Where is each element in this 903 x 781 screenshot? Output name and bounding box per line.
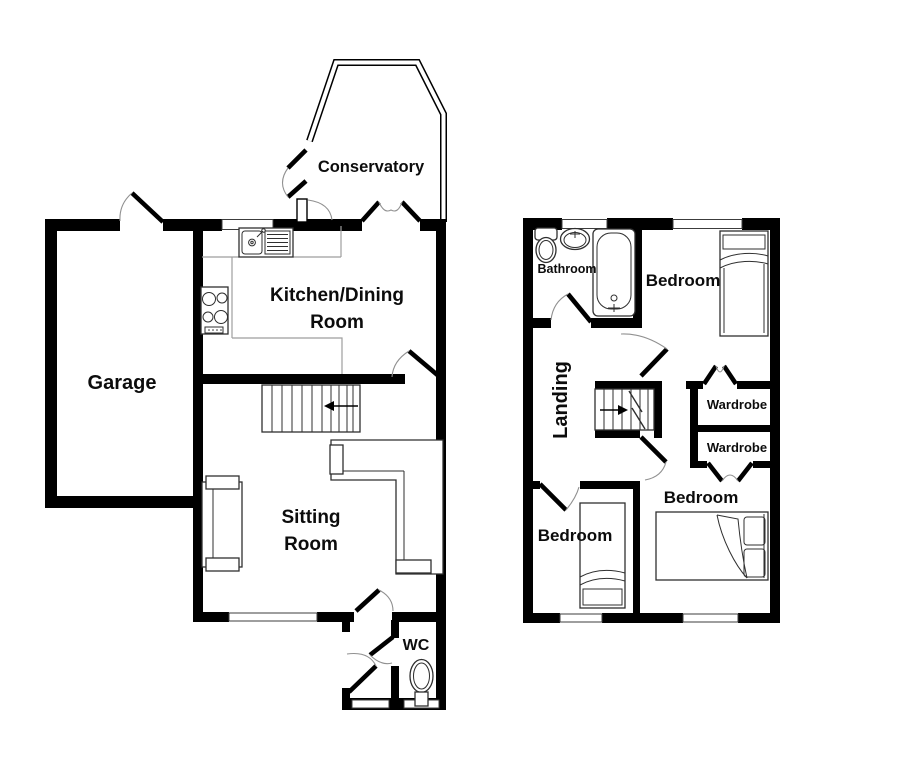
bathtub-icon: [593, 229, 635, 316]
kitchen-label-line1: Kitchen/Dining: [270, 285, 404, 306]
basin-icon: [561, 229, 590, 250]
bathroom-door-leaf: [568, 294, 591, 322]
garage-door-leaf: [132, 193, 163, 222]
wardrobe-upper-label: Wardrobe: [707, 397, 767, 412]
kitchen-sink-icon: [239, 228, 293, 257]
wardrobe-lower-label: Wardrobe: [707, 440, 767, 455]
hall-window: [352, 700, 389, 708]
bathroom-label: Bathroom: [537, 262, 596, 276]
bedroom-top-door-leaf: [641, 349, 667, 376]
bedroom-top-label: Bedroom: [646, 271, 721, 290]
bathroom-toilet-icon: [535, 228, 557, 263]
hob-icon: [201, 287, 228, 334]
garage-label: Garage: [88, 372, 157, 394]
sitting-label-line1: Sitting: [281, 507, 340, 528]
sitting-hall-door-leaf: [356, 590, 379, 611]
sitting-room-window: [229, 613, 317, 621]
wc-door-leaf: [370, 637, 393, 655]
conservatory-side-door-leaf: [288, 150, 306, 168]
sofa-icon: [202, 476, 242, 571]
single-bed-top-icon: [720, 231, 768, 336]
corner-sofa-icon: [330, 440, 443, 574]
single-bed-left-icon: [580, 503, 625, 608]
kitchen-label-line2: Room: [310, 312, 364, 333]
conservatory-door-panel: [297, 199, 307, 222]
conservatory-label: Conservatory: [318, 158, 425, 176]
bedroom-right-window: [683, 614, 738, 622]
landing-label: Landing: [550, 361, 572, 439]
bedroom-left-window: [560, 614, 602, 622]
conservatory-double-door: [362, 202, 379, 221]
bedroom-left-door-leaf: [540, 484, 566, 510]
first-floor-plan: Bathroom Bedroom Landing Wardrobe Wardro…: [523, 218, 780, 623]
bedroom-right-door-leaf: [641, 437, 666, 462]
staircase-ground: [262, 385, 360, 432]
ground-floor-plan: Conservatory Kitchen/Dining Room Garage …: [45, 63, 446, 711]
double-bed-icon: [656, 512, 768, 580]
floorplan-canvas: Conservatory Kitchen/Dining Room Garage …: [0, 0, 903, 781]
wardrobe-upper-door: [704, 366, 736, 384]
conservatory-glass-walls: [310, 63, 444, 223]
bedroom-right-label: Bedroom: [664, 488, 739, 507]
floorplan-page: Conservatory Kitchen/Dining Room Garage …: [0, 0, 903, 781]
staircase-first: [595, 389, 654, 430]
wardrobe-lower-door: [708, 463, 752, 481]
bedroom-top-window: [673, 220, 742, 229]
wc-label: WC: [403, 637, 430, 654]
bathroom-window: [562, 220, 607, 229]
front-door-leaf: [349, 666, 376, 692]
bedroom-left-label: Bedroom: [538, 526, 613, 545]
sitting-label-line2: Room: [284, 534, 338, 555]
